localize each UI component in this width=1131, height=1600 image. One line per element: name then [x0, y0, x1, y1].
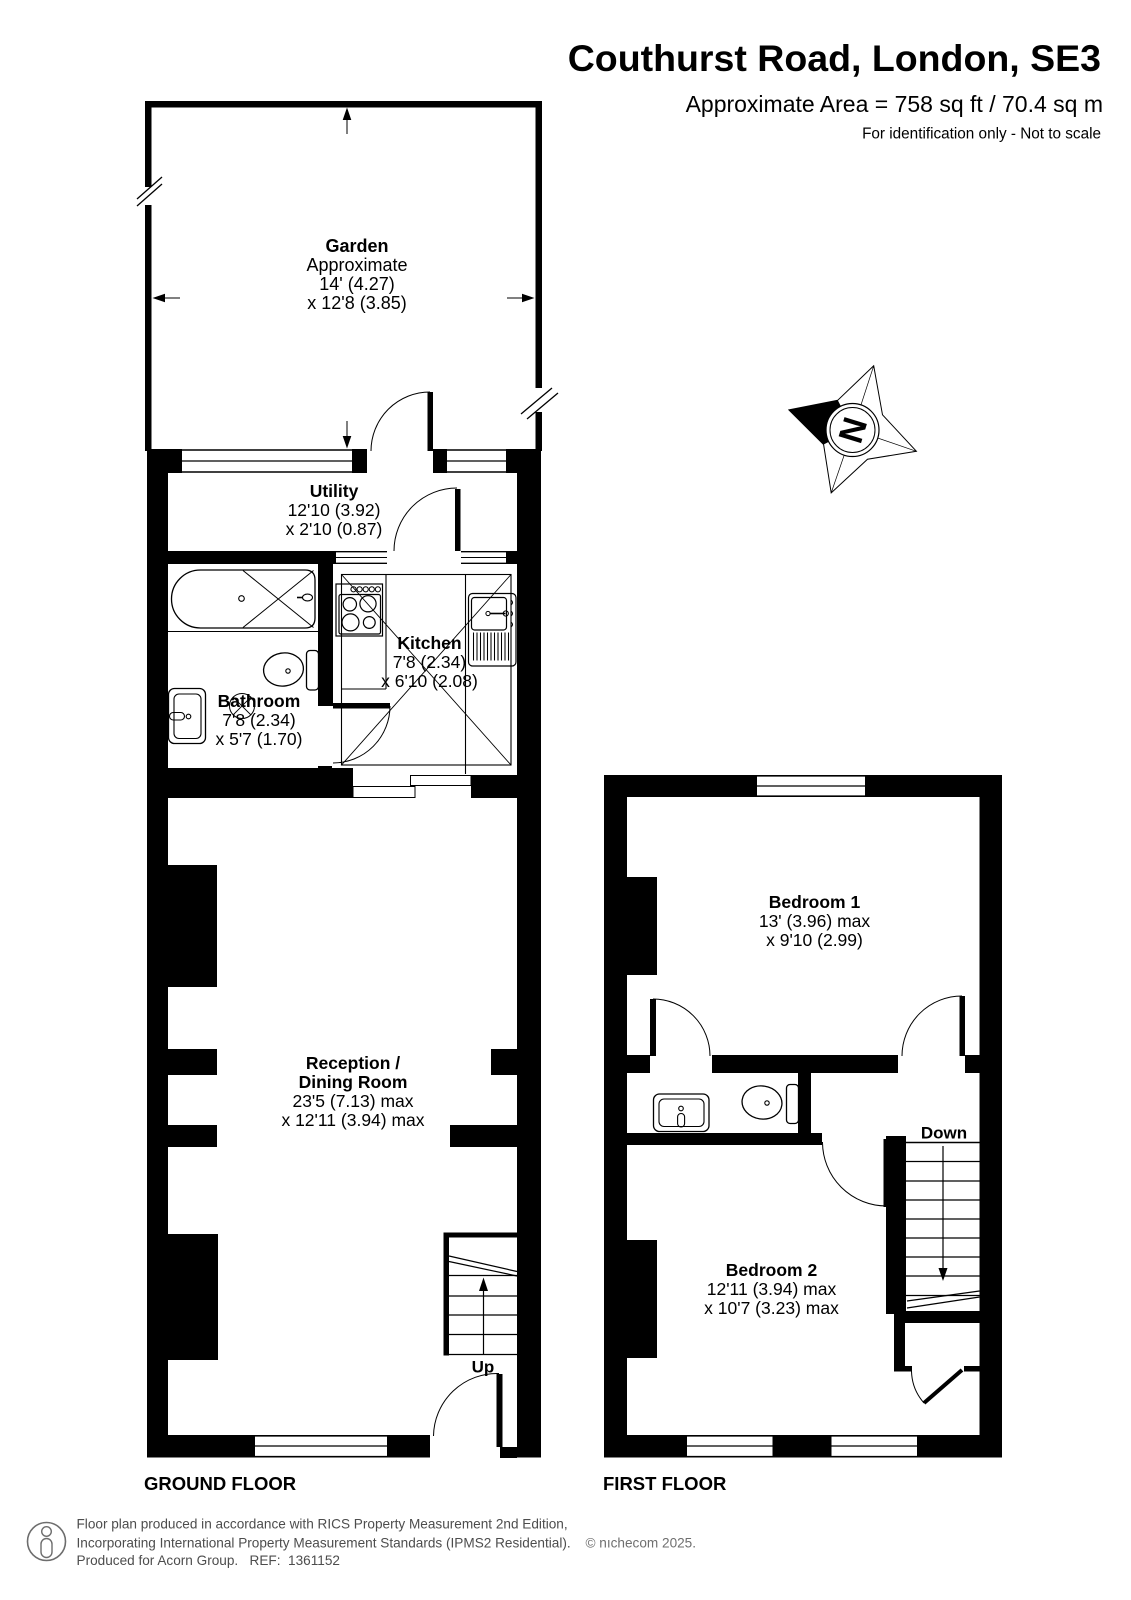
svg-text:x 5'7 (1.70): x 5'7 (1.70) [216, 729, 303, 749]
svg-text:x 9'10 (2.99): x 9'10 (2.99) [766, 930, 863, 950]
svg-text:Produced for Acorn Group. RE: Produced for Acorn Group. REF: 1361152 [77, 1553, 340, 1568]
svg-text:23'5 (7.13) max: 23'5 (7.13) max [292, 1091, 413, 1111]
svg-text:Floor plan produced in accorda: Floor plan produced in accordance with R… [77, 1517, 568, 1532]
svg-text:x 12'11 (3.94) max: x 12'11 (3.94) max [281, 1110, 424, 1130]
svg-text:Incorporating International Pr: Incorporating International Property Mea… [77, 1536, 571, 1551]
svg-text:Bedroom 2: Bedroom 2 [726, 1260, 818, 1280]
svg-text:FIRST FLOOR: FIRST FLOOR [603, 1473, 726, 1494]
svg-text:x 2'10 (0.87): x 2'10 (0.87) [286, 519, 383, 539]
svg-text:Down: Down [921, 1124, 967, 1143]
svg-text:7'8 (2.34): 7'8 (2.34) [222, 710, 295, 730]
svg-text:Kitchen: Kitchen [397, 633, 461, 653]
svg-text:Couthurst Road, London, SE3: Couthurst Road, London, SE3 [568, 37, 1101, 79]
svg-text:Approximate: Approximate [306, 255, 407, 275]
svg-text:7'8 (2.34): 7'8 (2.34) [393, 652, 466, 672]
svg-text:Bedroom 1: Bedroom 1 [769, 892, 861, 912]
svg-text:For identification only - Not: For identification only - Not to scale [862, 126, 1101, 143]
svg-text:x 12'8 (3.85): x 12'8 (3.85) [307, 293, 407, 313]
svg-text:12'11 (3.94) max: 12'11 (3.94) max [707, 1279, 837, 1299]
svg-text:Approximate Area = 758 sq ft /: Approximate Area = 758 sq ft / 70.4 sq m [686, 91, 1103, 117]
svg-text:Garden: Garden [325, 236, 388, 256]
svg-text:x 10'7 (3.23) max: x 10'7 (3.23) max [704, 1298, 839, 1318]
svg-text:Utility: Utility [310, 481, 359, 501]
svg-text:12'10 (3.92): 12'10 (3.92) [288, 500, 381, 520]
svg-text:14' (4.27): 14' (4.27) [319, 274, 394, 294]
svg-text:GROUND FLOOR: GROUND FLOOR [144, 1473, 296, 1494]
svg-text:Dining Room: Dining Room [299, 1072, 408, 1092]
svg-text:© nıchecom 2025.: © nıchecom 2025. [586, 1536, 697, 1551]
svg-text:13' (3.96) max: 13' (3.96) max [759, 911, 871, 931]
svg-text:Reception /: Reception / [306, 1053, 400, 1073]
